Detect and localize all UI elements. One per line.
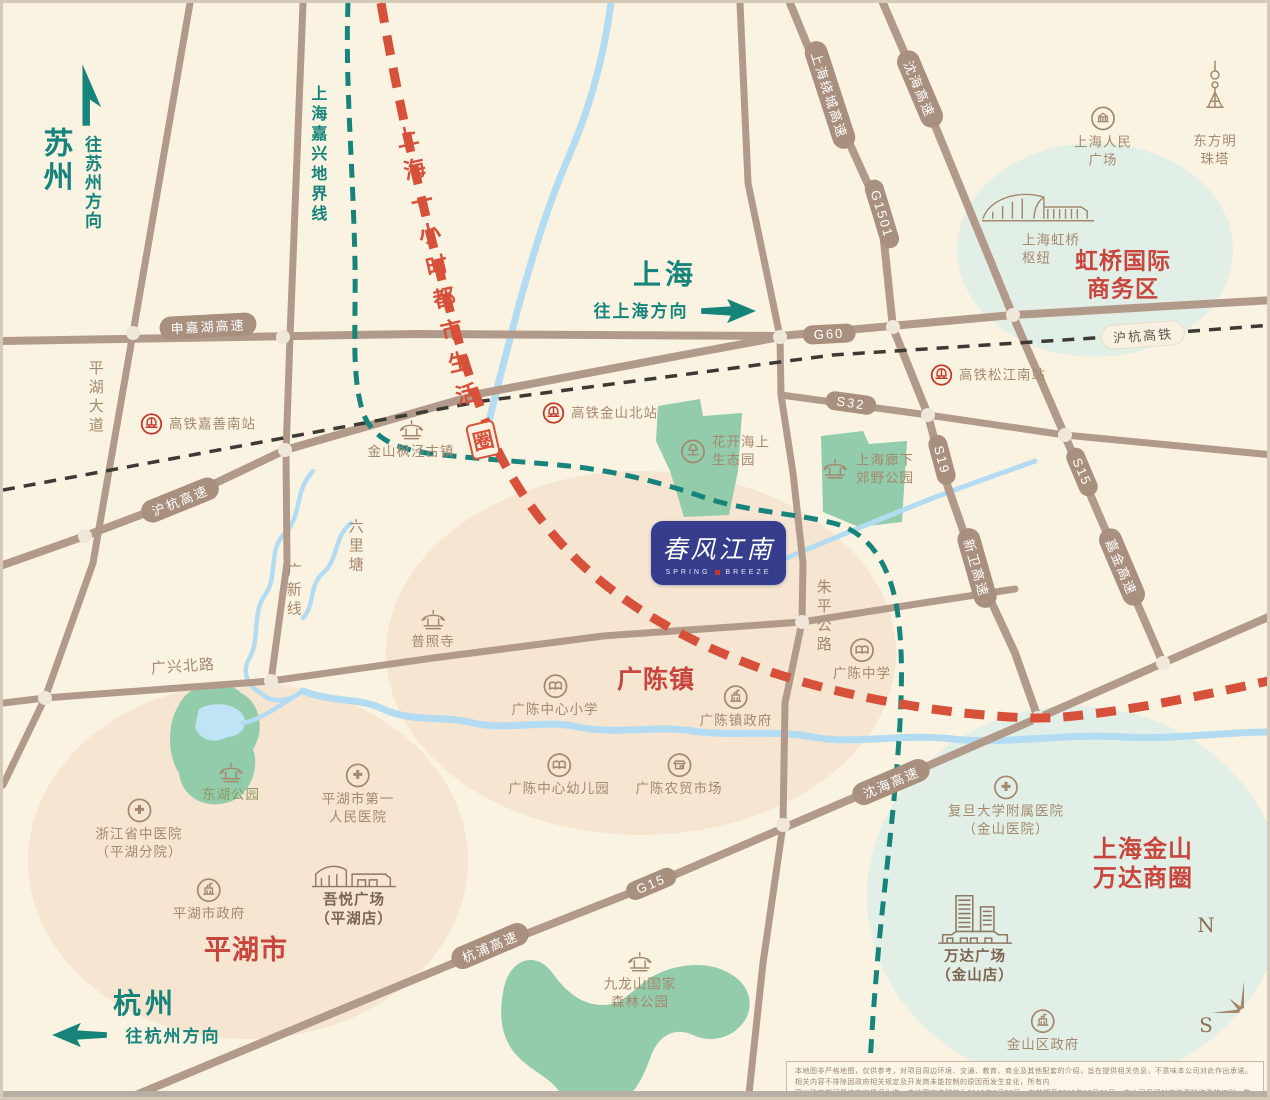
poi-wanda-plaza: 万达广场 （金山店） — [936, 892, 1014, 986]
poi-label: 东方明珠塔 — [1189, 132, 1241, 167]
rail-station-icon — [542, 402, 565, 425]
poi-label: 平湖市第一 人民医院 — [322, 790, 395, 825]
poi-label: 广陈中心幼儿园 — [508, 780, 610, 798]
logo-sub-left: SPRING — [666, 569, 711, 576]
tree-icon — [680, 438, 706, 464]
compass-north-label: N — [1197, 913, 1215, 937]
pagoda-icon — [216, 762, 246, 784]
poi-guangchen-middle-school: 广陈中学 — [833, 637, 891, 683]
poi-label: 广陈中心小学 — [512, 701, 599, 719]
poi-guangchen-town-gov: 广陈镇政府 — [700, 684, 773, 730]
suzhou-city-label: 苏州 — [36, 127, 75, 195]
pagoda-icon — [820, 458, 850, 480]
poi-wuyue-plaza: 吾悦广场 （平湖店） — [310, 857, 398, 930]
poi-flower-sea-park: 花开海上 生态园 — [680, 433, 770, 468]
poi-label: 广陈镇政府 — [700, 712, 773, 730]
road-label-pinghu-avenue: 平湖大道 — [85, 360, 105, 436]
poi-puzhao-temple: 普照寺 — [411, 609, 455, 651]
poi-label: 平湖市政府 — [173, 905, 246, 923]
pagoda-icon — [625, 951, 655, 973]
suzhou-direction-label: 往苏州方向 — [80, 136, 102, 231]
poi-label: 普照寺 — [411, 633, 455, 651]
school-icon — [542, 673, 568, 699]
poi-label: 九龙山国家 森林公园 — [604, 975, 677, 1010]
poi-label: 上海人民 广场 — [1074, 133, 1132, 168]
logo-dot-icon — [715, 570, 720, 575]
poi-jiashan-south-station: 高铁嘉善南站 — [140, 413, 256, 436]
road-pill-g60: G60 — [802, 323, 856, 345]
poi-label: 高铁松江南站 — [959, 366, 1046, 384]
school-icon — [849, 637, 875, 663]
shanghai-city-label: 上海 — [633, 257, 697, 293]
disclaimer-line1: 本地图非严格地图，仅供参考，对项目周边环境、交通、教育、商业及其他配套的介绍，旨… — [795, 1066, 1255, 1088]
project-logo: 春风江南 SPRING BREEZE — [651, 521, 786, 585]
poi-guangchen-kindergarten: 广陈中心幼儿园 — [508, 752, 610, 798]
poi-hongqiao-hub-label: 上海虹桥 枢纽 — [1022, 231, 1080, 266]
poi-songjiang-south-station: 高铁松江南站 — [930, 364, 1046, 387]
poi-pinghu-gov: 平湖市政府 — [173, 877, 246, 923]
pearl-tower-icon — [1202, 38, 1228, 130]
road-label-zhuping: 朱平公路 — [813, 579, 833, 655]
poi-pearl-tower: 东方明珠塔 — [1189, 38, 1241, 167]
location-map: 苏州 往苏州方向 上海 往上海方向 杭州 往杭州方向 上海嘉兴地界线 上海一小时… — [0, 0, 1270, 1100]
map-bottom-frame — [3, 1091, 1267, 1097]
poi-label: 复旦大学附属医院 （金山医院） — [948, 802, 1064, 837]
logo-sub-right: BREEZE — [725, 569, 771, 576]
hospital-icon — [993, 774, 1019, 800]
poi-label: 高铁金山北站 — [571, 404, 658, 422]
hangzhou-direction-label: 往杭州方向 — [126, 1026, 221, 1048]
suzhou-arrow-icon — [75, 63, 103, 127]
market-icon — [666, 752, 692, 778]
road-label-guangxin: 广新线 — [283, 563, 303, 620]
compass-rose-icon — [1168, 937, 1244, 1013]
government-icon — [1030, 1008, 1056, 1034]
government-icon — [723, 684, 749, 710]
government-icon — [196, 877, 222, 903]
poi-renmin-square: 上海人民 广场 — [1074, 105, 1132, 168]
people-square-icon — [1090, 105, 1116, 131]
rail-station-icon — [930, 364, 953, 387]
hospital-icon — [126, 797, 152, 823]
poi-jiulongshan-park: 九龙山国家 森林公园 — [604, 951, 677, 1010]
school-icon — [546, 752, 572, 778]
poi-jinshan-gov: 金山区政府 — [1007, 1008, 1080, 1054]
poi-donghu-park: 东湖公园 — [202, 762, 260, 804]
poi-guangchen-primary-school: 广陈中心小学 — [512, 673, 599, 719]
poi-label: 花开海上 生态园 — [712, 433, 770, 468]
poi-label: 金山区政府 — [1007, 1036, 1080, 1054]
shanghai-direction-label: 往上海方向 — [594, 301, 689, 323]
hongqiao-hub-icon — [979, 185, 1097, 227]
pagoda-icon — [396, 419, 426, 441]
poi-fengjing-town: 金山枫泾古镇 — [368, 419, 455, 461]
hospital-icon — [345, 762, 371, 788]
poi-label: 上海廊下 郊野公园 — [856, 451, 914, 486]
poi-langxia-park: 上海廊下 郊野公园 — [820, 451, 914, 486]
hangzhou-arrow-icon — [50, 1022, 108, 1048]
hangzhou-city-label: 杭州 — [113, 986, 177, 1022]
compass: N S — [1168, 913, 1244, 1037]
poi-label: 吾悦广场 （平湖店） — [315, 892, 393, 930]
zone-guangchen-town: 广陈镇 — [617, 665, 695, 695]
towers-icon — [936, 892, 1014, 946]
zone-hongqiao-biz: 虹桥国际 商务区 — [1075, 247, 1171, 302]
poi-label: 浙江省中医院 （平湖分院） — [96, 825, 183, 860]
pagoda-icon — [418, 609, 448, 631]
poi-label: 金山枫泾古镇 — [368, 443, 455, 461]
boundary-line-label: 上海嘉兴地界线 — [306, 85, 327, 225]
poi-jinshan-north-station: 高铁金山北站 — [542, 402, 658, 425]
shanghai-arrow-icon — [700, 298, 758, 324]
poi-zhejiang-hospital: 浙江省中医院 （平湖分院） — [96, 797, 183, 860]
poi-guangchen-market: 广陈农贸市场 — [636, 752, 723, 798]
poi-pinghu-hospital: 平湖市第一 人民医院 — [322, 762, 395, 825]
project-logo-title: 春风江南 — [662, 530, 774, 566]
poi-label: 万达广场 （金山店） — [936, 948, 1014, 986]
poi-fudan-hospital: 复旦大学附属医院 （金山医院） — [948, 774, 1064, 837]
zone-wanda-circle: 上海金山万达商圈 — [1081, 836, 1205, 894]
poi-label: 东湖公园 — [202, 786, 260, 804]
poi-label: 广陈中学 — [833, 665, 891, 683]
compass-south-label: S — [1199, 1013, 1213, 1037]
poi-label: 高铁嘉善南站 — [169, 415, 256, 433]
poi-label: 广陈农贸市场 — [636, 780, 723, 798]
zone-pinghu-city: 平湖市 — [204, 934, 288, 966]
river-label-liulitang: 六里塘 — [345, 519, 365, 576]
mall-icon — [310, 857, 398, 890]
rail-station-icon — [140, 413, 163, 436]
